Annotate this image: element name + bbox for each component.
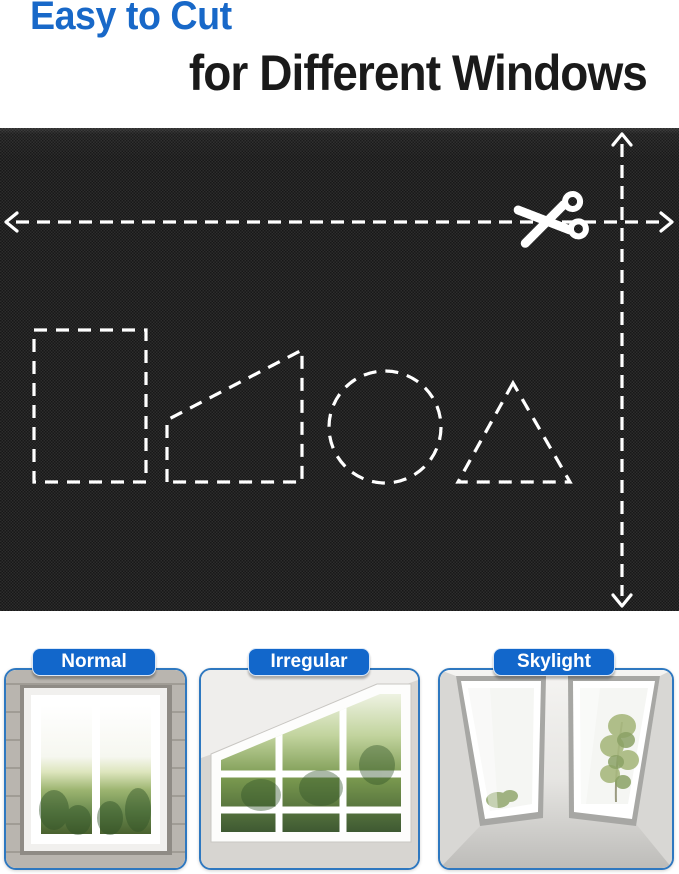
vertical-cut-line-arrows xyxy=(613,134,631,606)
scissors-icon xyxy=(517,193,587,248)
card-normal-window xyxy=(4,668,187,870)
card-skylight-window xyxy=(438,668,674,870)
blackout-fabric-panel xyxy=(0,128,679,611)
irregular-window-photo xyxy=(201,670,418,868)
skylight-window-photo xyxy=(440,670,672,868)
cut-shape-rectangle xyxy=(34,330,146,482)
cut-shape-circle xyxy=(329,371,441,483)
label-normal: Normal xyxy=(32,648,156,676)
normal-window-photo xyxy=(6,670,185,868)
cut-shape-triangle xyxy=(458,383,570,482)
cut-shape-trapezoid xyxy=(167,350,302,482)
product-infographic: Easy to Cut for Different Windows xyxy=(0,0,679,874)
cut-guide-overlay xyxy=(0,128,679,611)
label-irregular: Irregular xyxy=(248,648,370,676)
headline-line1: Easy to Cut xyxy=(30,0,232,38)
label-skylight: Skylight xyxy=(493,648,615,676)
headline-line2: for Different Windows xyxy=(189,48,647,98)
card-irregular-window xyxy=(199,668,420,870)
